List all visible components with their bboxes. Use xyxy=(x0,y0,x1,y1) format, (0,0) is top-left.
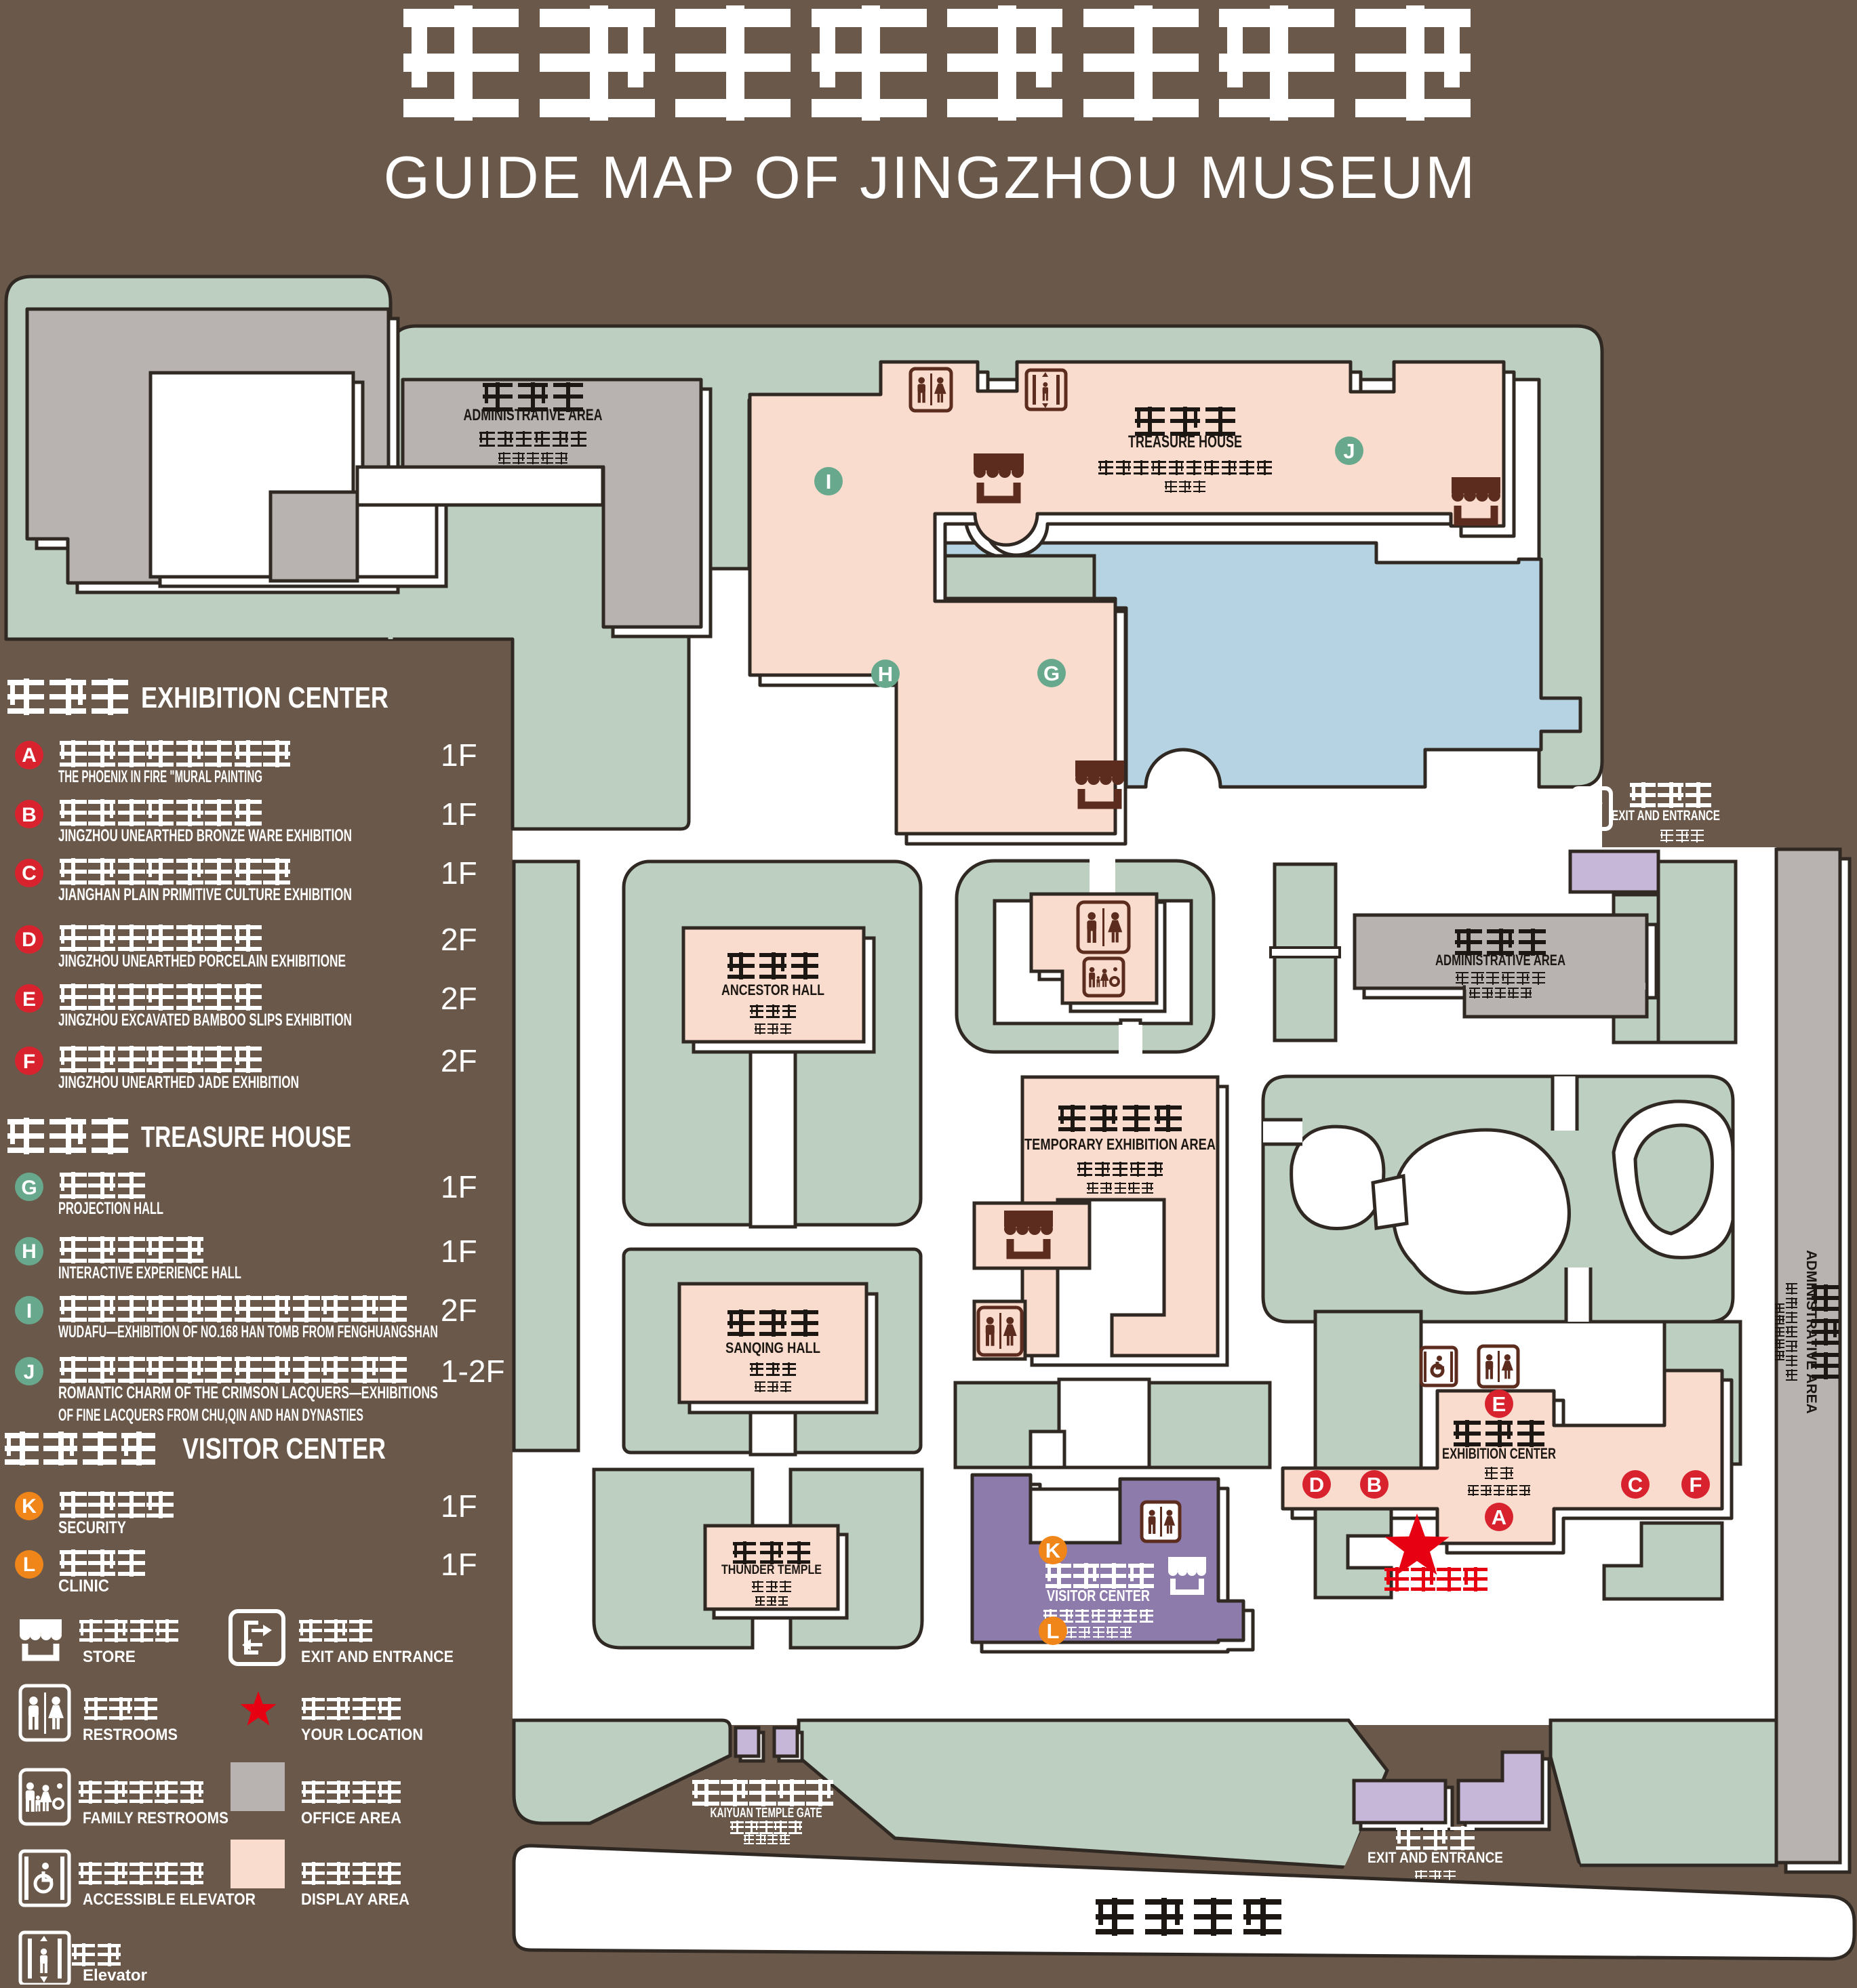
svg-text:J: J xyxy=(24,1361,35,1383)
svg-text:2F: 2F xyxy=(441,981,477,1016)
svg-text:1F: 1F xyxy=(441,855,477,891)
svg-text:TREASURE HOUSE: TREASURE HOUSE xyxy=(141,1120,351,1154)
svg-text:THUNDER TEMPLE: THUNDER TEMPLE xyxy=(721,1563,822,1577)
svg-text:OFFICE AREA: OFFICE AREA xyxy=(301,1809,401,1827)
svg-text:I: I xyxy=(26,1300,32,1322)
svg-text:JINGZHOU UNEARTHED JADE EXHIBI: JINGZHOU UNEARTHED JADE EXHIBITION xyxy=(58,1073,299,1092)
svg-text:J: J xyxy=(1343,439,1355,463)
svg-text:E: E xyxy=(1492,1392,1506,1416)
svg-text:JINGZHOU UNEARTHED BRONZE WARE: JINGZHOU UNEARTHED BRONZE WARE EXHIBITIO… xyxy=(58,826,352,845)
svg-text:2F: 2F xyxy=(441,1293,477,1328)
svg-text:JIANGHAN PLAIN PRIMITIVE CULTU: JIANGHAN PLAIN PRIMITIVE CULTURE EXHIBIT… xyxy=(58,885,352,904)
svg-text:F: F xyxy=(1690,1473,1702,1497)
svg-text:E: E xyxy=(22,988,36,1011)
svg-text:EXIT AND ENTRANCE: EXIT AND ENTRANCE xyxy=(1367,1849,1503,1866)
svg-text:ADMINISTRATIVE AREA: ADMINISTRATIVE AREA xyxy=(464,406,603,424)
svg-text:ACCESSIBLE ELEVATOR: ACCESSIBLE ELEVATOR xyxy=(83,1890,256,1909)
svg-text:1F: 1F xyxy=(441,1234,477,1269)
svg-text:EXHIBITION CENTER: EXHIBITION CENTER xyxy=(141,681,388,714)
svg-text:D: D xyxy=(1309,1473,1324,1497)
svg-text:K: K xyxy=(1045,1539,1061,1562)
svg-text:A: A xyxy=(1492,1505,1506,1529)
svg-text:YOUR LOCATION: YOUR LOCATION xyxy=(301,1726,423,1744)
svg-text:C: C xyxy=(22,862,37,885)
svg-text:H: H xyxy=(22,1240,37,1263)
svg-text:EXIT AND ENTRANCE: EXIT AND ENTRANCE xyxy=(1612,808,1720,824)
svg-text:1-2F: 1-2F xyxy=(441,1354,505,1389)
svg-text:ADMINISTRATIVE AREA: ADMINISTRATIVE AREA xyxy=(1435,952,1565,969)
svg-text:JINGZHOU UNEARTHED PORCELAIN E: JINGZHOU UNEARTHED PORCELAIN EXHIBITIONE xyxy=(58,952,346,971)
svg-text:DISPLAY AREA: DISPLAY AREA xyxy=(301,1890,410,1909)
svg-text:VISITOR CENTER: VISITOR CENTER xyxy=(1047,1587,1150,1604)
svg-text:A: A xyxy=(22,744,37,767)
svg-text:ADMINISTRATIVE AREA: ADMINISTRATIVE AREA xyxy=(1803,1250,1819,1414)
svg-text:SECURITY: SECURITY xyxy=(58,1518,126,1537)
svg-text:1F: 1F xyxy=(441,1488,477,1524)
svg-text:ANCESTOR HALL: ANCESTOR HALL xyxy=(721,981,824,998)
svg-text:C: C xyxy=(1628,1473,1643,1497)
svg-text:VISITOR CENTER: VISITOR CENTER xyxy=(182,1432,386,1465)
svg-text:B: B xyxy=(22,804,37,826)
svg-text:B: B xyxy=(1367,1473,1382,1497)
svg-text:INTERACTIVE EXPERIENCE HALL: INTERACTIVE EXPERIENCE HALL xyxy=(58,1263,241,1282)
svg-text:K: K xyxy=(22,1495,37,1518)
svg-text:1F: 1F xyxy=(441,737,477,773)
svg-text:CLINIC: CLINIC xyxy=(58,1577,109,1596)
svg-text:JINGZHOU EXCAVATED BAMBOO SLIP: JINGZHOU EXCAVATED BAMBOO SLIPS EXHIBITI… xyxy=(58,1011,352,1030)
svg-text:THE PHOENIX IN FIRE "MURAL PAI: THE PHOENIX IN FIRE "MURAL PAINTING xyxy=(58,767,262,786)
svg-text:H: H xyxy=(878,662,893,686)
svg-text:ROMANTIC CHARM OF THE CRIMSON: ROMANTIC CHARM OF THE CRIMSON LACQUERS—E… xyxy=(58,1383,438,1402)
svg-text:G: G xyxy=(21,1177,37,1199)
svg-text:EXHIBITION CENTER: EXHIBITION CENTER xyxy=(1442,1445,1556,1462)
svg-text:EXIT AND ENTRANCE: EXIT AND ENTRANCE xyxy=(301,1648,454,1666)
svg-text:OF FINE LACQUERS FROM CHU,QIN: OF FINE LACQUERS FROM CHU,QIN AND HAN DY… xyxy=(58,1406,363,1425)
svg-text:GUIDE MAP OF JINGZHOU MUSEUM: GUIDE MAP OF JINGZHOU MUSEUM xyxy=(384,144,1477,211)
svg-text:1F: 1F xyxy=(441,796,477,832)
svg-text:Elevator: Elevator xyxy=(83,1966,147,1985)
svg-text:KAIYUAN TEMPLE GATE: KAIYUAN TEMPLE GATE xyxy=(711,1806,822,1821)
svg-text:F: F xyxy=(23,1051,35,1073)
svg-text:L: L xyxy=(1047,1619,1060,1643)
svg-text:2F: 2F xyxy=(441,922,477,957)
svg-text:SANQING HALL: SANQING HALL xyxy=(725,1339,820,1356)
svg-text:D: D xyxy=(22,929,37,951)
svg-text:TEMPORARY EXHIBITION AREA: TEMPORARY EXHIBITION AREA xyxy=(1024,1135,1216,1153)
svg-text:1F: 1F xyxy=(441,1547,477,1582)
svg-text:TREASURE HOUSE: TREASURE HOUSE xyxy=(1128,432,1242,451)
svg-text:PROJECTION HALL: PROJECTION HALL xyxy=(58,1199,163,1218)
svg-text:STORE: STORE xyxy=(83,1648,136,1666)
svg-text:1F: 1F xyxy=(441,1169,477,1204)
svg-text:G: G xyxy=(1043,662,1060,685)
svg-text:RESTROOMS: RESTROOMS xyxy=(83,1726,178,1744)
svg-text:L: L xyxy=(23,1554,35,1576)
svg-text:2F: 2F xyxy=(441,1043,477,1078)
svg-text:FAMILY RESTROOMS: FAMILY RESTROOMS xyxy=(83,1809,228,1827)
svg-text:WUDAFU—EXHIBITION OF NO.168 HA: WUDAFU—EXHIBITION OF NO.168 HAN TOMB FRO… xyxy=(58,1322,438,1341)
svg-text:I: I xyxy=(826,470,832,493)
